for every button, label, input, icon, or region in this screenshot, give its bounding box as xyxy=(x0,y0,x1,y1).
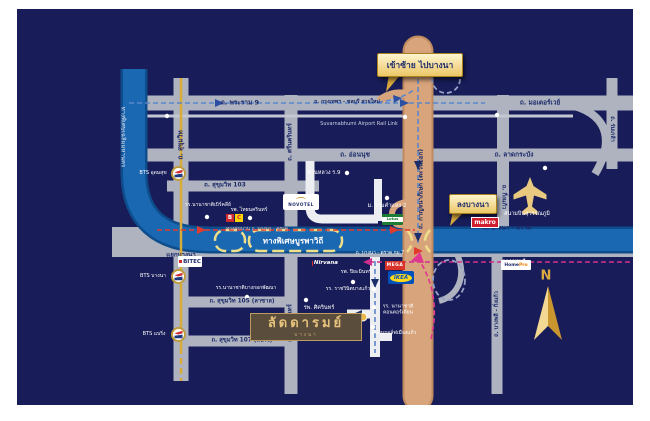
big-c-logo-c: C xyxy=(235,214,243,222)
place-label-concordian: รร. นานาชาติ คอนคอร์เดียน xyxy=(383,304,413,316)
compass-north-label: N xyxy=(541,269,552,284)
station-label-udomsuk: BTS อุดมสุข xyxy=(139,171,166,177)
makro-logo-text: makro xyxy=(474,219,495,226)
road-label-srinakarin-top: ถ. ศรีนครินทร์ xyxy=(288,123,295,161)
place-label-patana: รร.นานาชาติบางกอกพัฒนา xyxy=(216,286,276,292)
bts-station-icon-udomsuk xyxy=(171,166,186,181)
map-canvas: ถ. พระราม 9 ถ. กรุงเทพฯ - ชลบุรี สายใหม่… xyxy=(0,0,650,421)
road-airport-arc xyxy=(557,103,606,174)
callout-enter-left-bangna: เข้าซ้าย ไปบางนา xyxy=(377,53,463,77)
big-c-logo: B C xyxy=(226,214,243,222)
homepro-logo: HomePro xyxy=(501,260,531,270)
bts-logo-icon xyxy=(174,169,183,178)
nirvana-logo-text: Nirvana xyxy=(314,260,338,266)
bitec-mark-icon xyxy=(179,260,182,263)
station-label-bangna: BTS บางนา xyxy=(140,274,166,280)
label-airport-rail-link: Suvarnabhumi Airport Rail Link xyxy=(320,122,398,128)
laddarom-project-logo: ลัดดารมย์ บางนา xyxy=(250,313,362,341)
lotus-logo: Lotus xyxy=(382,214,403,225)
place-label-thainakarin: รพ. ไทยนครินทร์ xyxy=(231,208,268,214)
bts-logo-icon xyxy=(174,330,183,339)
road-label-sukhumvit: ถ. สุขุมวิท xyxy=(177,130,184,159)
lotus-logo-text: Lotus xyxy=(382,217,403,222)
novotel-logo: NOVOTEL xyxy=(283,194,319,210)
makro-logo: makro xyxy=(471,217,499,228)
road-label-rama9: ถ. พระราม 9 xyxy=(221,99,259,106)
project-subtitle: บางนา xyxy=(294,331,317,338)
bts-station-icon-bangna xyxy=(171,269,186,284)
bitec-logo: BITEC xyxy=(178,256,202,267)
label-chalerm-expressway: ทางพิเศษเฉลิมมหานคร xyxy=(119,107,126,167)
road-label-soi105: ถ. สุขุมวิท 105 (ลาซาล) xyxy=(209,299,274,306)
compass-needle xyxy=(534,286,562,340)
road-label-onnut: ถ. อ่อนนุช xyxy=(340,151,370,158)
callout-exit-bangna: ลงบางนา xyxy=(449,194,497,214)
mega-logo-text: MEGA xyxy=(387,263,404,268)
place-label-ratwinit: รร. ราชวินิตบางแก้ว xyxy=(326,287,370,293)
ikea-oval-icon: IKEA xyxy=(390,274,412,282)
novotel-logo-text: NOVOTEL xyxy=(288,202,314,207)
road-label-romklao: ถ. ร่มเกล้า xyxy=(609,116,615,142)
airplane-icon xyxy=(514,177,547,215)
ikea-logo: IKEA xyxy=(388,271,414,284)
map-background: ถ. พระราม 9 ถ. กรุงเทพฯ - ชลบุรี สายใหม่… xyxy=(17,9,633,405)
road-label-latkrabang: ถ. ลาดกระบัง xyxy=(495,151,534,158)
place-label-ramkhamhaeng2: ม. รามคำแหง 2 xyxy=(368,203,407,209)
mega-bangna-logo: MEGA xyxy=(385,261,405,270)
road-label-kingkaew: ถ. กิ่งแก้ว xyxy=(500,185,507,210)
place-label-suvarnabhumi: สนามบินสุวรรณภูมิ xyxy=(504,211,550,217)
ikea-logo-text: IKEA xyxy=(394,275,408,281)
place-label-concordian-line2: คอนคอร์เดียน xyxy=(383,310,413,316)
station-label-bearing: BTS แบริ่ง xyxy=(143,332,166,338)
road-label-motorway: ถ. มอเตอร์เวย์ xyxy=(520,99,560,106)
bitec-logo-text: BITEC xyxy=(183,259,201,265)
project-name: ลัดดารมย์ xyxy=(268,317,344,330)
place-label-berkeley: รร.นานาชาติเบิร์คลีย์ xyxy=(185,203,231,209)
big-c-logo-b: B xyxy=(226,214,234,222)
homepro-logo-text1: Home xyxy=(504,263,519,268)
bts-station-icon-bearing xyxy=(171,327,186,342)
label-bangna-trat-km7: ถ. บางนา - ตราด กม.7 xyxy=(356,251,404,257)
place-label-piyamin: รพ. ปิยะมินทร์ xyxy=(341,270,372,276)
bts-logo-icon xyxy=(174,272,183,281)
label-burapha-expressway: ทางพิเศษบูรพาวิถี xyxy=(263,236,324,245)
place-label-sikarin: รพ. ศิครินทร์ xyxy=(304,305,335,311)
road-network-layer xyxy=(17,9,633,405)
place-label-muangkaew-golf: สนามกอล์ฟเมืองแก้ว xyxy=(372,331,417,337)
place-label-suanluang: สวนหลวง ร.9 xyxy=(308,170,341,176)
road-label-kanchanaphisek: ถ. กาญจนาภิเษก (ตะวันออก) xyxy=(417,149,424,229)
label-frontage-road: ทางคู่ขนาน ถ. บางนา - ตราด xyxy=(226,227,288,233)
road-label-soi103: ถ. สุขุมวิท 103 xyxy=(204,183,246,190)
homepro-logo-text2: Pro xyxy=(519,263,528,268)
nirvana-logo: Nirvana xyxy=(312,259,338,267)
road-label-bkk-chonburi: ถ. กรุงเทพฯ - ชลบุรี สายใหม่ xyxy=(314,100,380,106)
road-label-bangphli-kingkaew: ถ. บางพลี - กิ่งแก้ว xyxy=(494,291,500,337)
